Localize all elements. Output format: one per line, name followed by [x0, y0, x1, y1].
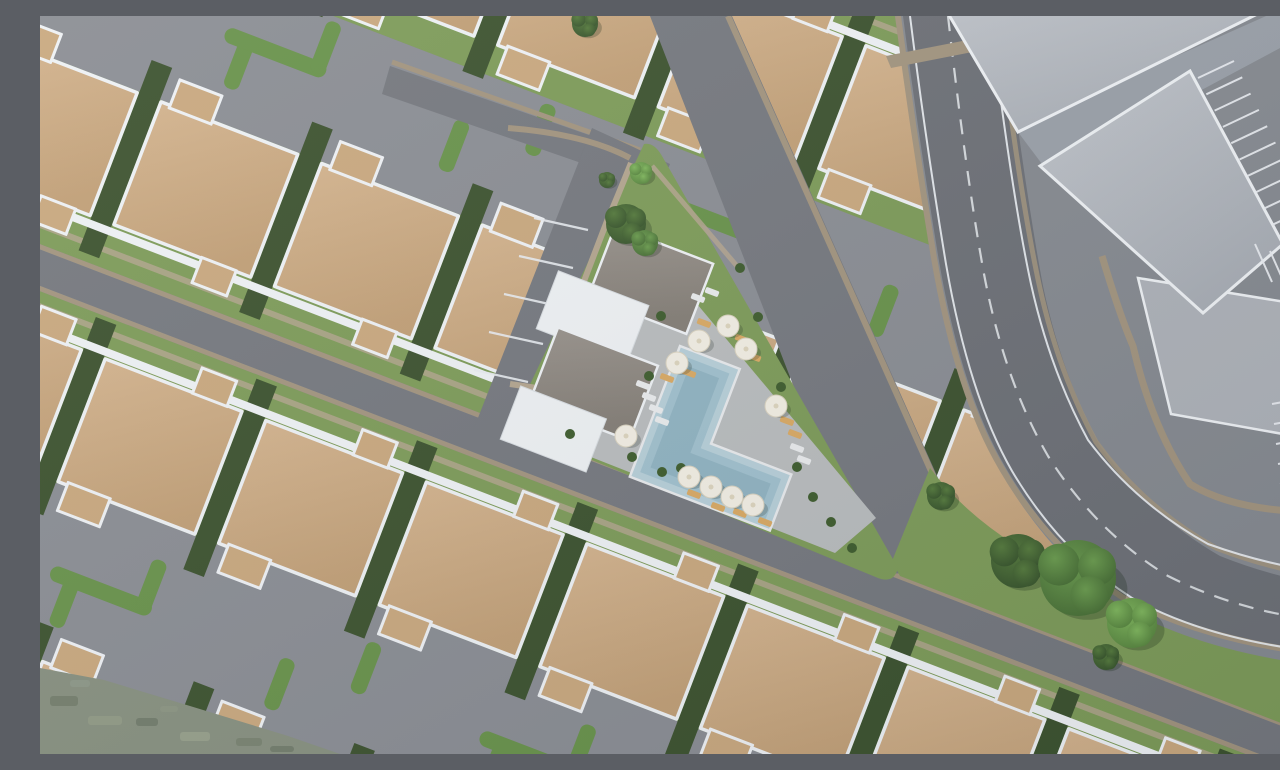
- aerial-site-plan-svg: [40, 16, 1280, 754]
- aerial-site-render: Aerial 3D site-plan rendering of a resid…: [40, 16, 1280, 754]
